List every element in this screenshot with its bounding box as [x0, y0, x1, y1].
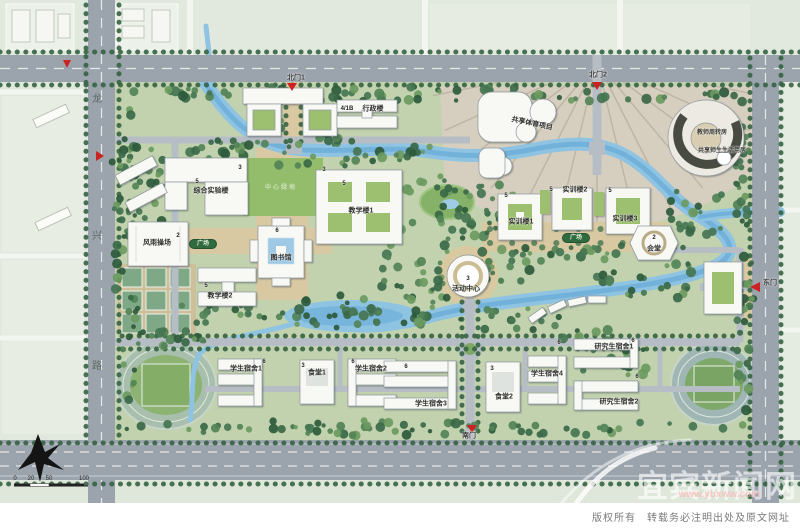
building-comprehensive-lab [165, 158, 248, 215]
map-label: 南门 [462, 433, 476, 440]
building-library [250, 218, 312, 286]
copyright-bar: 版权所有 转载务必注明出处及原文网址 [0, 503, 800, 529]
map-label: 0 [13, 476, 16, 482]
map-label: 学生宿舍3 [415, 401, 447, 408]
map-label: 3 [238, 165, 241, 171]
map-label: 共享师生生活用房 [698, 148, 746, 154]
map-label: 东门 [763, 280, 777, 287]
map-label: 5 [608, 188, 611, 194]
map-label: 中心绿地 [265, 185, 297, 191]
map-label: 5 [195, 179, 198, 185]
map-label: 食堂2 [495, 394, 513, 401]
map-label: 教学楼1 [349, 208, 374, 215]
building-canteen-1 [300, 360, 334, 404]
map-label: 学生宿舍4 [531, 371, 563, 378]
map-label: 兴 [92, 232, 102, 242]
map-label: 图书馆 [271, 255, 292, 262]
map-label: 5 [342, 181, 345, 187]
map-label: 实训楼3 [613, 216, 638, 223]
map-label: 教师周转房 [697, 130, 727, 136]
copyright-text: 版权所有 转载务必注明出处及原文网址 [592, 509, 800, 524]
map-label: 学生宿舍2 [355, 366, 387, 373]
building-training-1 [498, 194, 542, 240]
map-label: 6 [275, 228, 278, 234]
campus-masterplan-map: 4/1B行政楼综合实验楼53教学楼153教学楼25图书馆6风雨操场2实训楼15实… [0, 0, 800, 529]
map-label: 6 [631, 338, 634, 344]
map-label: 龙 [92, 95, 102, 105]
map-label: 综合实验楼 [194, 188, 229, 195]
map-label: 3 [466, 276, 469, 282]
map-label: 实训楼1 [509, 219, 534, 226]
map-label: 广场 [189, 239, 217, 249]
map-canvas [0, 0, 800, 529]
roundabout [458, 337, 482, 361]
map-label: 5 [549, 187, 552, 193]
map-label: 活动中心 [452, 286, 480, 293]
map-label: 食堂1 [308, 370, 326, 377]
map-label: 5 [204, 283, 207, 289]
map-label: 研究生宿舍2 [600, 399, 639, 406]
map-label: 研究生宿舍1 [595, 344, 634, 351]
map-label: 20 [28, 476, 35, 482]
map-label: 北门2 [589, 72, 607, 79]
map-label: 学生宿舍1 [230, 366, 262, 373]
building-dorm-4 [528, 356, 566, 404]
map-label: 6 [262, 359, 265, 365]
map-label: 3 [301, 363, 304, 369]
building-east-gate-complex [704, 262, 742, 314]
map-label: 4/1B [341, 106, 354, 112]
map-label: 3 [322, 167, 325, 173]
map-label: 6 [404, 364, 407, 370]
map-label: 100 [79, 476, 89, 482]
building-auditorium [630, 226, 678, 260]
map-label: 50 [46, 476, 53, 482]
map-label: 2 [176, 233, 179, 239]
map-label: 广场 [562, 233, 590, 243]
map-label: 6 [635, 374, 638, 380]
map-label: 北门1 [287, 75, 305, 82]
map-label: 6 [351, 359, 354, 365]
map-label: 5 [504, 193, 507, 199]
map-label: 风雨操场 [143, 240, 171, 247]
map-label: 会堂 [647, 246, 661, 253]
map-label: 2 [652, 235, 655, 241]
map-label: 6 [557, 340, 560, 346]
map-label: 行政楼 [363, 106, 384, 113]
building-gate-colonnade [243, 88, 323, 104]
building-shared-living-circle [668, 100, 744, 176]
map-label: 实训楼2 [563, 187, 588, 194]
map-label: 教学楼2 [208, 293, 233, 300]
map-label: 3 [490, 366, 493, 372]
map-label: 路 [92, 362, 102, 372]
scale-bar [14, 484, 88, 487]
